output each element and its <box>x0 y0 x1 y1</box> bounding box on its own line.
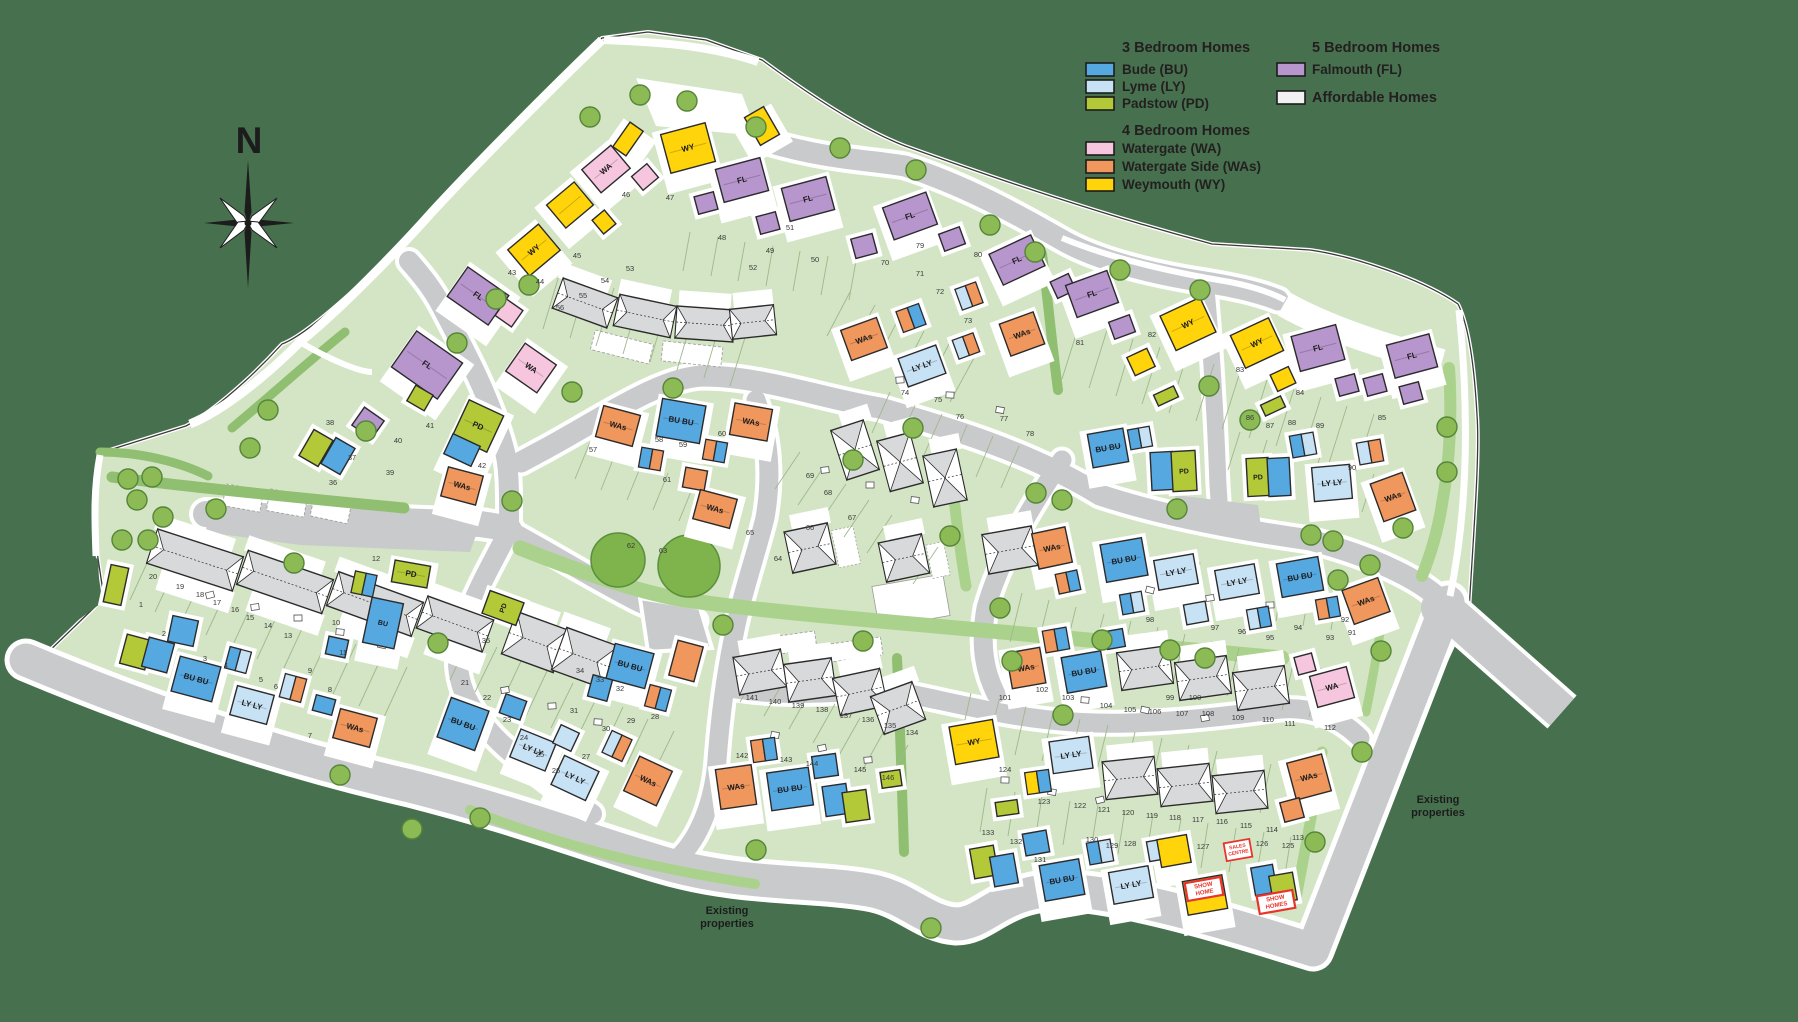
svg-text:24: 24 <box>520 733 528 742</box>
svg-text:3 Bedroom Homes: 3 Bedroom Homes <box>1122 40 1250 56</box>
svg-text:93: 93 <box>1326 633 1334 642</box>
svg-text:142: 142 <box>736 751 749 760</box>
svg-text:143: 143 <box>780 755 793 764</box>
svg-text:126: 126 <box>1256 839 1269 848</box>
svg-text:125: 125 <box>1282 841 1295 850</box>
svg-text:21: 21 <box>461 678 469 687</box>
svg-text:124: 124 <box>999 765 1012 774</box>
svg-text:4: 4 <box>224 661 228 670</box>
svg-text:137: 137 <box>840 711 853 720</box>
svg-text:28: 28 <box>651 712 659 721</box>
svg-text:5 Bedroom Homes: 5 Bedroom Homes <box>1312 40 1440 56</box>
svg-text:26: 26 <box>552 766 560 775</box>
svg-text:18: 18 <box>196 590 204 599</box>
svg-text:2: 2 <box>162 629 166 638</box>
svg-text:77: 77 <box>1000 414 1008 423</box>
svg-text:121: 121 <box>1098 805 1111 814</box>
svg-text:90: 90 <box>1348 463 1356 472</box>
svg-text:47: 47 <box>666 193 674 202</box>
svg-text:37: 37 <box>348 453 356 462</box>
svg-text:98: 98 <box>1146 615 1154 624</box>
svg-text:75: 75 <box>934 395 942 404</box>
svg-text:5: 5 <box>259 675 263 684</box>
svg-text:114: 114 <box>1266 825 1278 834</box>
svg-text:8: 8 <box>328 685 332 694</box>
svg-text:4 Bedroom Homes: 4 Bedroom Homes <box>1122 123 1250 139</box>
svg-text:144: 144 <box>806 759 819 768</box>
svg-text:95: 95 <box>1266 633 1274 642</box>
svg-text:111: 111 <box>1284 719 1295 728</box>
svg-text:61: 61 <box>663 475 671 484</box>
svg-text:117: 117 <box>1192 815 1204 824</box>
svg-text:120: 120 <box>1122 808 1135 817</box>
svg-text:Existing: Existing <box>706 905 749 917</box>
svg-text:89: 89 <box>1316 421 1324 430</box>
svg-text:81: 81 <box>1076 338 1084 347</box>
svg-text:69: 69 <box>806 471 814 480</box>
svg-text:92: 92 <box>1341 615 1349 624</box>
svg-text:62: 62 <box>627 541 635 550</box>
svg-text:Padstow (PD): Padstow (PD) <box>1122 96 1209 111</box>
svg-text:83: 83 <box>1236 365 1244 374</box>
svg-text:80: 80 <box>974 250 982 259</box>
svg-text:105: 105 <box>1124 705 1137 714</box>
svg-text:91: 91 <box>1348 628 1356 637</box>
svg-text:107: 107 <box>1176 709 1189 718</box>
svg-text:122: 122 <box>1074 801 1087 810</box>
svg-text:25: 25 <box>536 750 544 759</box>
svg-text:42: 42 <box>478 461 486 470</box>
svg-text:145: 145 <box>854 765 867 774</box>
svg-text:127: 127 <box>1197 842 1210 851</box>
svg-text:56: 56 <box>556 303 564 312</box>
svg-text:PD: PD <box>1253 474 1263 481</box>
svg-text:52: 52 <box>749 263 757 272</box>
svg-text:110: 110 <box>1262 715 1274 724</box>
svg-text:17: 17 <box>213 598 221 607</box>
svg-text:10: 10 <box>332 618 340 627</box>
svg-text:57: 57 <box>589 445 597 454</box>
svg-text:132: 132 <box>1010 837 1023 846</box>
svg-text:85: 85 <box>1378 413 1386 422</box>
svg-text:66: 66 <box>806 523 814 532</box>
svg-text:48: 48 <box>718 233 726 242</box>
svg-text:86: 86 <box>1246 413 1254 422</box>
svg-text:16: 16 <box>231 605 239 614</box>
svg-text:112: 112 <box>1324 723 1336 732</box>
svg-text:103: 103 <box>1062 693 1075 702</box>
svg-text:74: 74 <box>901 388 909 397</box>
svg-text:6: 6 <box>274 682 278 691</box>
svg-text:properties: properties <box>700 918 754 930</box>
svg-text:11: 11 <box>339 648 347 657</box>
svg-text:131: 131 <box>1034 855 1047 864</box>
svg-text:102: 102 <box>1036 685 1049 694</box>
svg-text:118: 118 <box>1169 813 1181 822</box>
svg-text:116: 116 <box>1216 817 1228 826</box>
svg-text:3: 3 <box>203 654 207 663</box>
svg-text:36: 36 <box>329 478 337 487</box>
svg-text:30: 30 <box>602 724 610 733</box>
svg-text:104: 104 <box>1100 701 1113 710</box>
svg-text:PD: PD <box>1179 468 1189 475</box>
svg-text:27: 27 <box>582 752 590 761</box>
svg-text:67: 67 <box>848 513 856 522</box>
svg-text:55: 55 <box>579 291 587 300</box>
svg-text:23: 23 <box>503 715 511 724</box>
svg-text:44: 44 <box>536 277 544 286</box>
svg-text:138: 138 <box>816 705 829 714</box>
svg-text:59: 59 <box>679 440 687 449</box>
svg-text:140: 140 <box>769 697 782 706</box>
svg-text:50: 50 <box>811 255 819 264</box>
svg-text:88: 88 <box>1288 418 1296 427</box>
svg-text:33: 33 <box>596 675 604 684</box>
svg-text:properties: properties <box>1411 807 1465 819</box>
svg-text:14: 14 <box>264 621 272 630</box>
svg-text:22: 22 <box>483 693 491 702</box>
svg-text:76: 76 <box>956 412 964 421</box>
svg-text:133: 133 <box>982 828 995 837</box>
svg-text:29: 29 <box>627 716 635 725</box>
svg-text:109: 109 <box>1232 713 1245 722</box>
svg-text:108: 108 <box>1202 709 1215 718</box>
svg-text:70: 70 <box>881 258 889 267</box>
svg-text:71: 71 <box>916 269 924 278</box>
svg-text:146: 146 <box>882 773 895 782</box>
svg-text:63: 63 <box>659 546 667 555</box>
svg-text:19: 19 <box>176 582 184 591</box>
svg-text:7: 7 <box>308 731 312 740</box>
svg-text:32: 32 <box>616 684 624 693</box>
svg-text:Watergate Side (WAs): Watergate Side (WAs) <box>1122 159 1261 174</box>
svg-text:13: 13 <box>284 631 292 640</box>
svg-text:Existing: Existing <box>1417 794 1460 806</box>
svg-text:128: 128 <box>1124 839 1137 848</box>
svg-text:Lyme (LY): Lyme (LY) <box>1122 79 1186 94</box>
svg-text:Watergate (WA): Watergate (WA) <box>1122 141 1221 156</box>
svg-text:72: 72 <box>936 287 944 296</box>
svg-text:41: 41 <box>426 421 434 430</box>
svg-text:31: 31 <box>570 706 578 715</box>
svg-text:101: 101 <box>999 693 1012 702</box>
svg-text:64: 64 <box>774 554 782 563</box>
svg-text:Bude (BU): Bude (BU) <box>1122 62 1188 77</box>
svg-text:129: 129 <box>1106 841 1119 850</box>
svg-text:134: 134 <box>906 728 919 737</box>
svg-text:15: 15 <box>246 613 254 622</box>
svg-text:141: 141 <box>746 693 759 702</box>
svg-text:78: 78 <box>1026 429 1034 438</box>
svg-text:136: 136 <box>862 715 875 724</box>
svg-text:123: 123 <box>1038 797 1051 806</box>
svg-text:35: 35 <box>482 636 490 645</box>
svg-text:54: 54 <box>601 276 609 285</box>
svg-text:100: 100 <box>1189 693 1202 702</box>
svg-text:97: 97 <box>1211 623 1219 632</box>
svg-text:46: 46 <box>622 190 630 199</box>
svg-text:135: 135 <box>884 721 897 730</box>
svg-text:79: 79 <box>916 241 924 250</box>
svg-text:99: 99 <box>1166 693 1174 702</box>
svg-text:12: 12 <box>372 554 380 563</box>
svg-text:60: 60 <box>718 429 726 438</box>
svg-text:N: N <box>236 120 263 161</box>
svg-text:58: 58 <box>655 435 663 444</box>
svg-text:49: 49 <box>766 246 774 255</box>
svg-text:96: 96 <box>1238 627 1246 636</box>
svg-text:94: 94 <box>1294 623 1302 632</box>
svg-text:130: 130 <box>1086 835 1099 844</box>
svg-text:1: 1 <box>139 600 143 609</box>
svg-text:34: 34 <box>576 666 584 675</box>
svg-text:119: 119 <box>1146 811 1158 820</box>
svg-text:106: 106 <box>1149 707 1162 716</box>
svg-text:82: 82 <box>1148 330 1156 339</box>
svg-text:65: 65 <box>746 528 754 537</box>
svg-text:68: 68 <box>824 488 832 497</box>
svg-text:73: 73 <box>964 316 972 325</box>
svg-text:20: 20 <box>149 572 157 581</box>
svg-text:84: 84 <box>1296 388 1304 397</box>
svg-text:Weymouth (WY): Weymouth (WY) <box>1122 177 1225 192</box>
svg-text:LY LY: LY LY <box>1321 478 1343 489</box>
svg-text:139: 139 <box>792 701 805 710</box>
svg-text:87: 87 <box>1266 421 1274 430</box>
svg-text:38: 38 <box>326 418 334 427</box>
svg-text:Affordable Homes: Affordable Homes <box>1312 90 1437 106</box>
svg-text:51: 51 <box>786 223 794 232</box>
svg-text:39: 39 <box>386 468 394 477</box>
svg-text:45: 45 <box>573 251 581 260</box>
svg-text:115: 115 <box>1240 821 1252 830</box>
svg-text:40: 40 <box>394 436 402 445</box>
svg-text:9: 9 <box>308 666 312 675</box>
svg-text:Falmouth (FL): Falmouth (FL) <box>1312 62 1402 77</box>
svg-text:43: 43 <box>508 268 516 277</box>
svg-text:53: 53 <box>626 264 634 273</box>
